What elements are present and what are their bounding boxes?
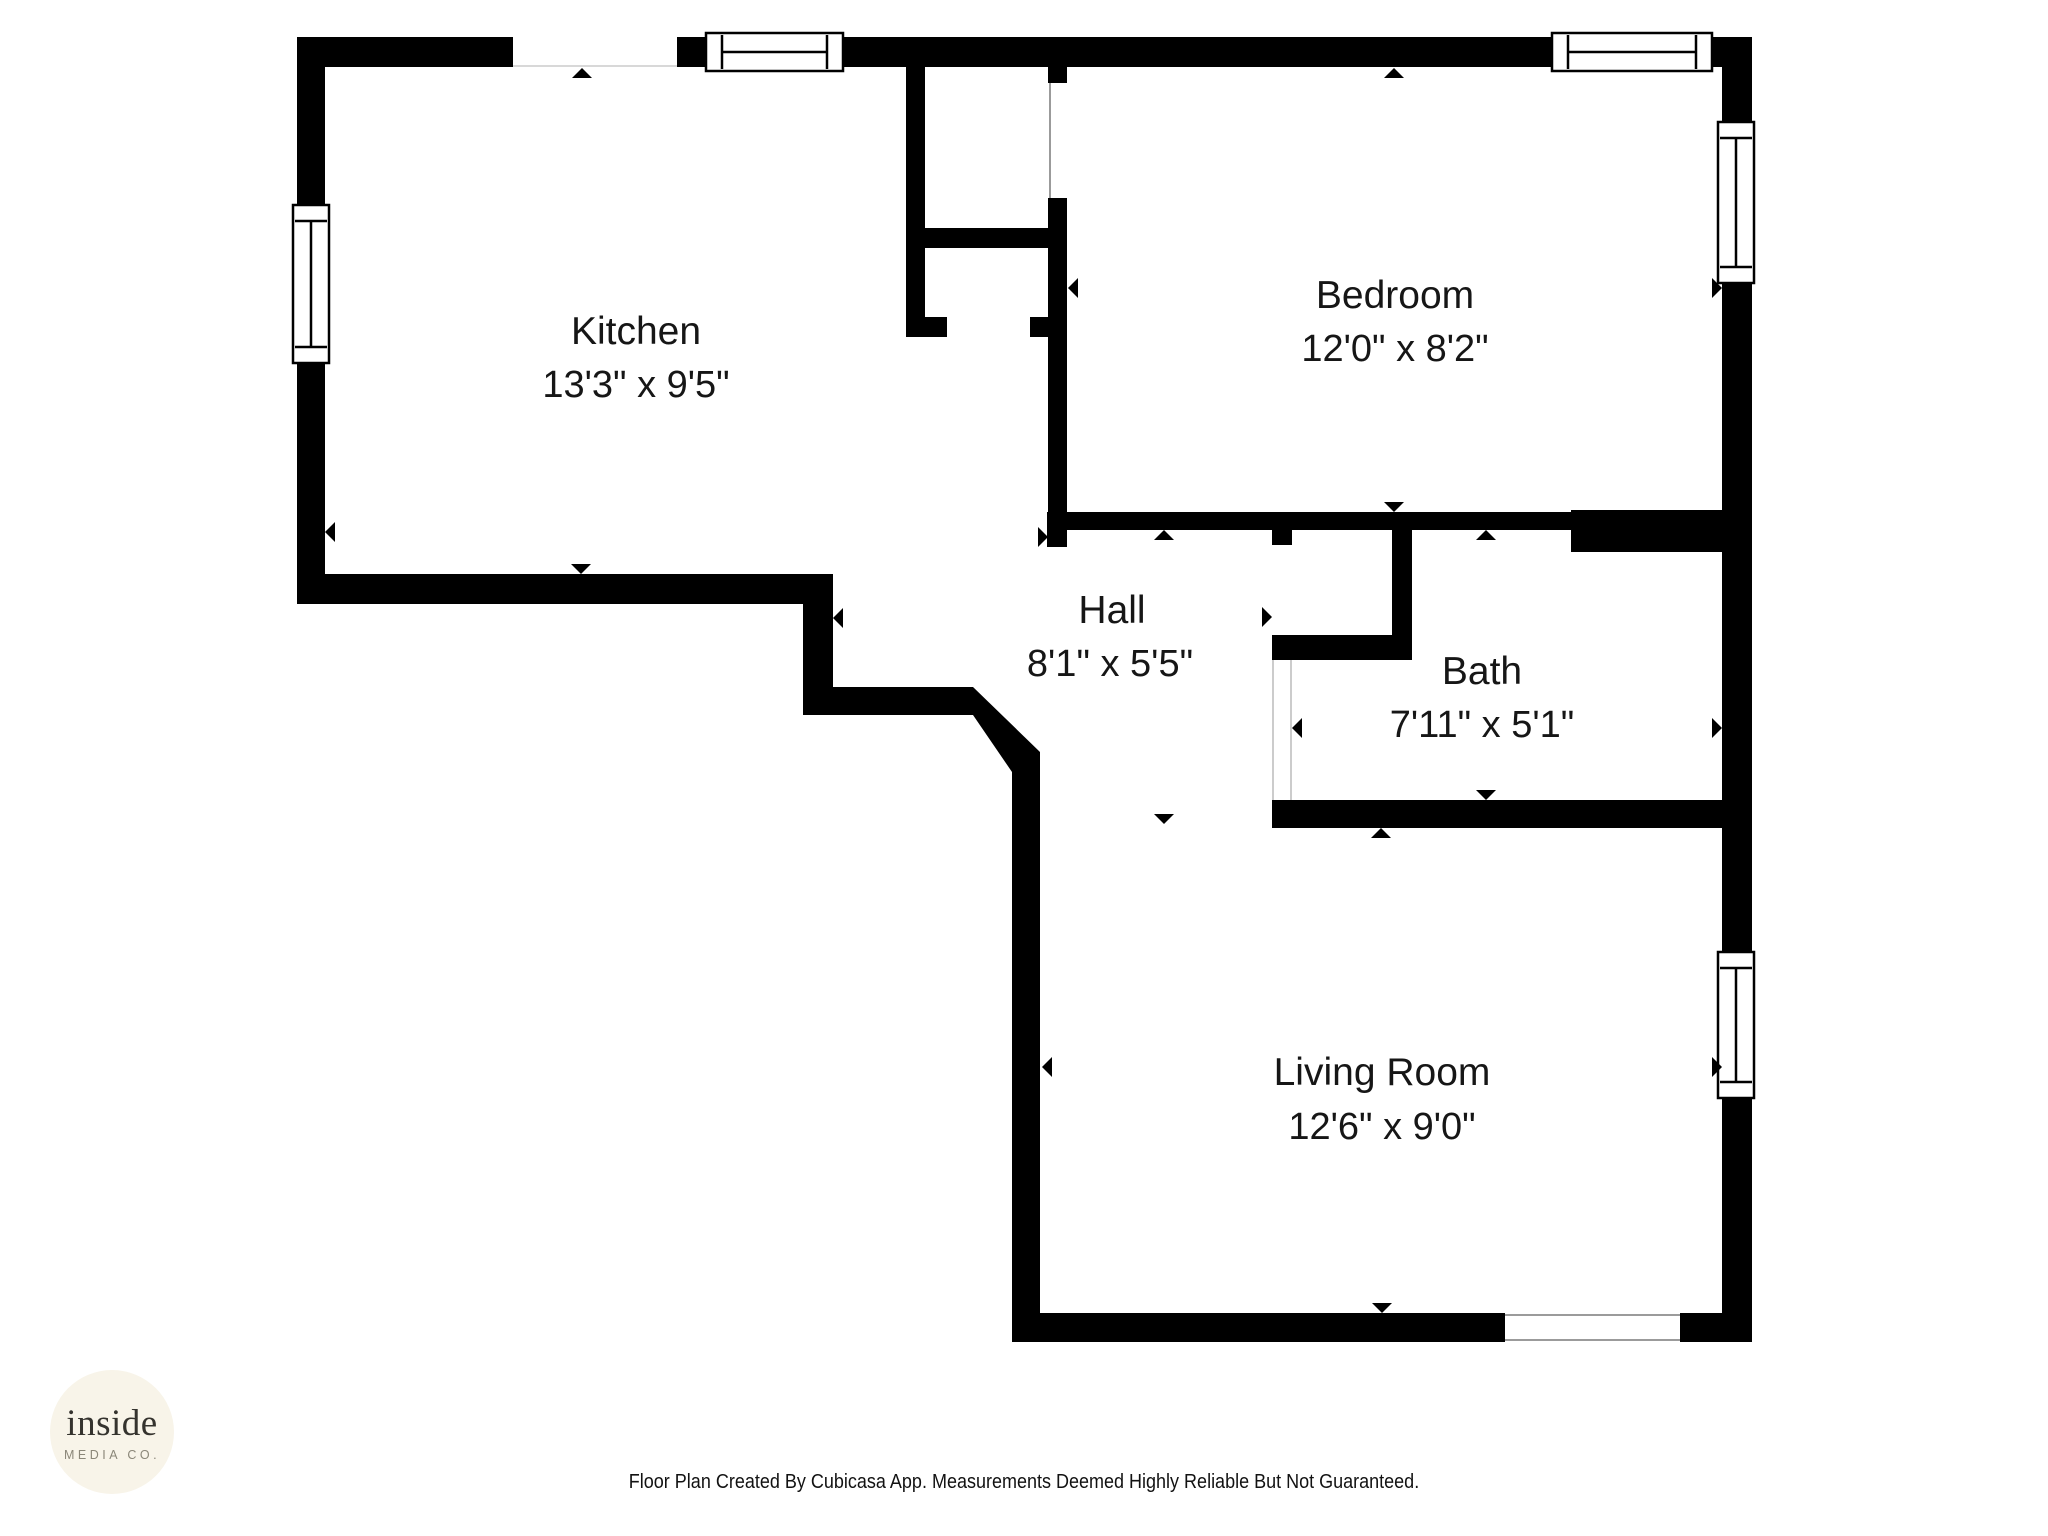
wall-closet (1048, 67, 1067, 83)
marker-left-icon (325, 522, 335, 542)
logo-subtitle: MEDIA CO. (64, 1449, 160, 1462)
marker-down-icon (1154, 814, 1174, 824)
wall-closet (1048, 198, 1067, 512)
marker-left-icon (1068, 278, 1078, 298)
room-dimensions-living-room: 12'6" x 9'0" (1288, 1106, 1475, 1148)
marker-down-icon (571, 564, 591, 574)
room-label-hall: Hall (1078, 589, 1145, 632)
wall-compartment (1272, 635, 1412, 660)
wall (297, 37, 513, 67)
floor-plan-page: Kitchen 13'3" x 9'5" Bedroom 12'0" x 8'2… (0, 0, 2048, 1536)
openings (513, 66, 1680, 1340)
wall (843, 37, 1552, 67)
marker-up-icon (1371, 828, 1391, 838)
logo-name: inside (66, 1405, 157, 1442)
wall (1722, 37, 1752, 122)
wall (1067, 512, 1571, 530)
room-dimensions-hall: 8'1" x 5'5" (1027, 643, 1193, 685)
wall (1272, 530, 1292, 545)
walls (297, 37, 1752, 1342)
wall (1722, 283, 1752, 952)
wall (1722, 1098, 1752, 1342)
marker-up-icon (1476, 530, 1496, 540)
window (706, 33, 843, 71)
marker-up-icon (572, 68, 592, 78)
room-label-kitchen: Kitchen (571, 310, 701, 353)
window (1718, 952, 1754, 1098)
marker-down-icon (1476, 790, 1496, 800)
room-dimensions-bedroom: 12'0" x 8'2" (1301, 328, 1488, 370)
marker-right-icon (1712, 718, 1722, 738)
wall-closet (906, 317, 947, 337)
marker-down-icon (1372, 1303, 1392, 1313)
wall (1272, 800, 1752, 828)
wall-closet (1030, 317, 1067, 337)
wall (297, 37, 325, 205)
wall (803, 574, 833, 715)
wall (833, 687, 973, 715)
marker-left-icon (1292, 718, 1302, 738)
marker-left-icon (1042, 1057, 1052, 1077)
wall (677, 37, 706, 67)
wall (297, 363, 325, 604)
marker-down-icon (1384, 502, 1404, 512)
window (1552, 33, 1712, 71)
wall-closet (1047, 512, 1067, 547)
wall (1571, 510, 1722, 552)
marker-up-icon (1384, 68, 1404, 78)
marker-up-icon (1154, 530, 1174, 540)
wall (297, 574, 833, 604)
marker-right-icon (1038, 527, 1048, 547)
wall-closet (925, 228, 1067, 248)
window (1718, 122, 1754, 283)
marker-right-icon (1262, 607, 1272, 627)
room-dimensions-bath: 7'11" x 5'1" (1390, 704, 1574, 746)
wall (1012, 1313, 1505, 1342)
wall-diagonal (973, 687, 1040, 1342)
marker-left-icon (833, 608, 843, 628)
room-label-living-room: Living Room (1274, 1051, 1491, 1094)
window (293, 205, 329, 363)
room-dimensions-kitchen: 13'3" x 9'5" (542, 364, 729, 406)
disclaimer-text: Floor Plan Created By Cubicasa App. Meas… (102, 1471, 1945, 1494)
wall-compartment (1392, 530, 1412, 660)
wall-closet (906, 67, 925, 337)
room-label-bath: Bath (1442, 650, 1522, 693)
room-label-bedroom: Bedroom (1316, 274, 1474, 317)
floor-plan-drawing: Kitchen 13'3" x 9'5" Bedroom 12'0" x 8'2… (0, 0, 2048, 1536)
